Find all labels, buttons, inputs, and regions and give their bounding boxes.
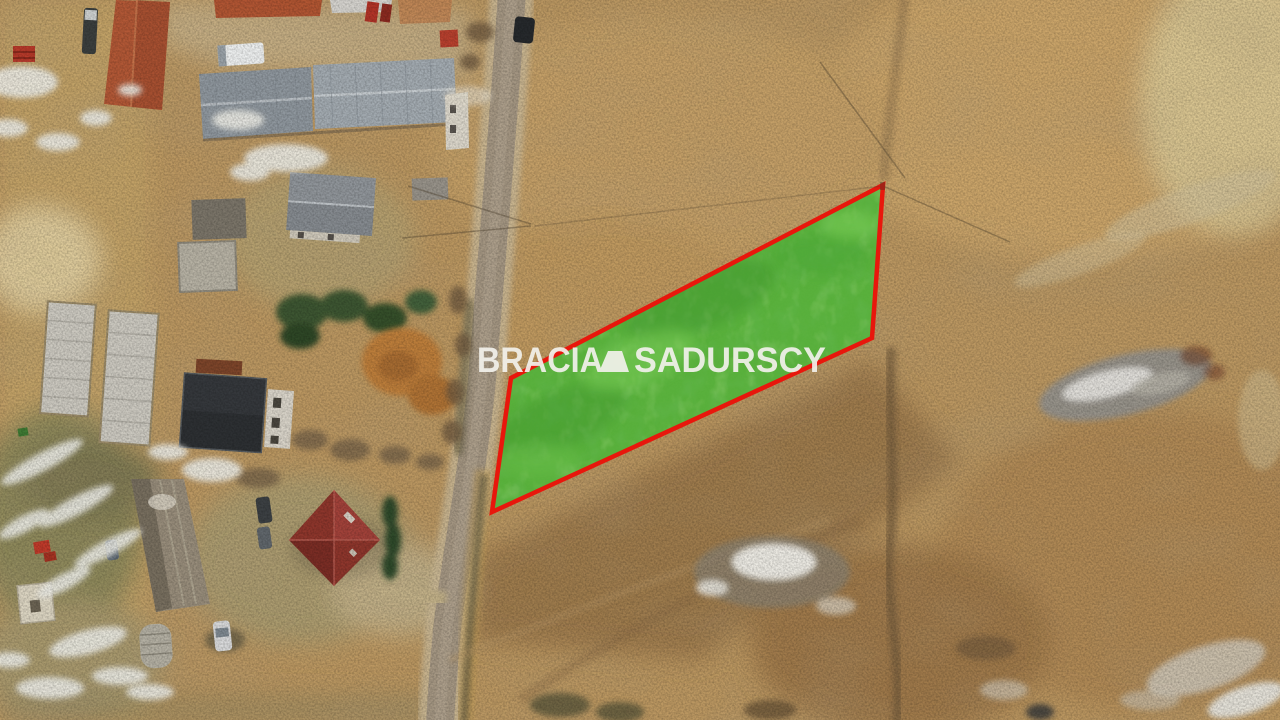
watermark-word-bracia: BRACIA xyxy=(477,341,603,380)
utility-pole xyxy=(880,182,885,190)
watermark: BRACIA SADURSCY xyxy=(477,341,826,380)
aerial-photo-canvas: BRACIA SADURSCY xyxy=(0,0,1280,720)
aerial-property-photo: BRACIA SADURSCY xyxy=(0,0,1280,720)
watermark-word-sadurscy: SADURSCY xyxy=(634,341,826,380)
